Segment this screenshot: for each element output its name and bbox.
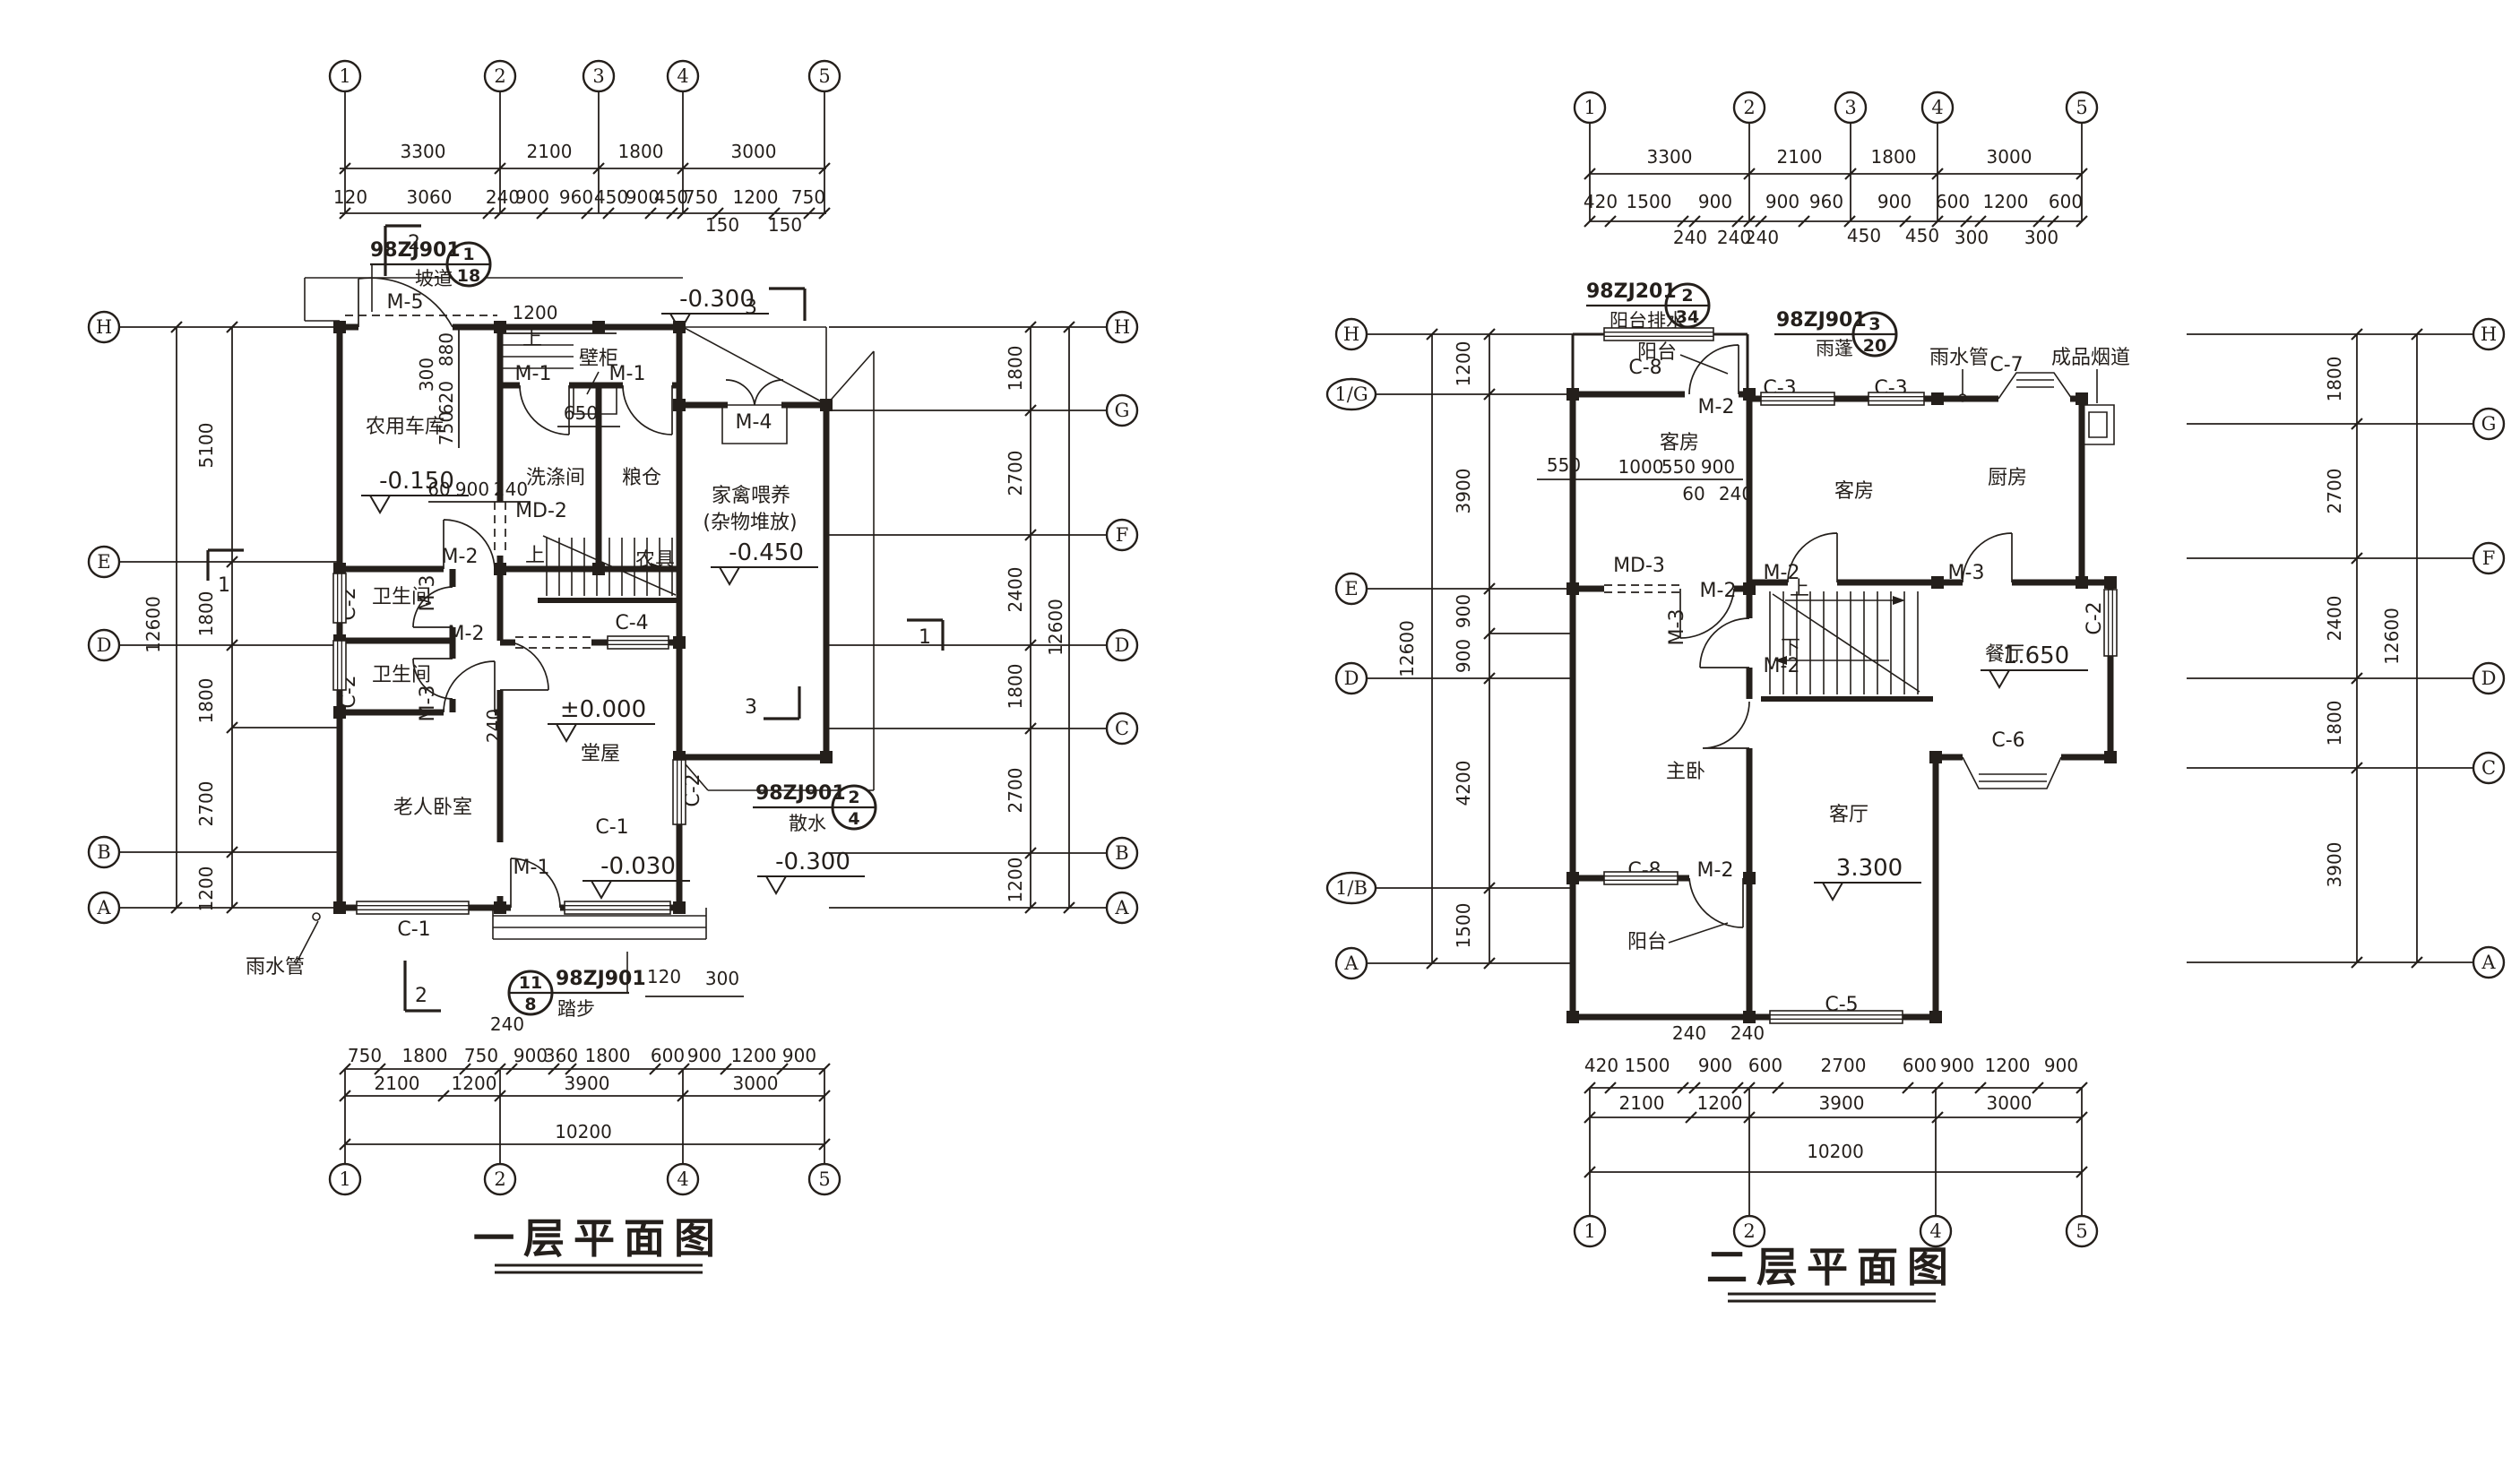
grid-bubble-label: 5 [818, 1168, 830, 1190]
label-text: M-2 [1700, 580, 1737, 602]
dimension-text: 1800 [2324, 701, 2345, 746]
callout-note: 踏步 [557, 998, 595, 1020]
column-block [1931, 576, 1944, 589]
dimension-text: 1800 [195, 678, 217, 724]
grid-bubble-label: 5 [818, 65, 830, 87]
dimension-text: 900 [1698, 191, 1732, 212]
dimension-text: 900 [455, 478, 489, 500]
label-text: M-3 [1666, 609, 1688, 646]
dimension-text: 1000 [1618, 456, 1664, 478]
label-text: 1 [919, 626, 931, 649]
grid-bubble-label: 1 [1584, 97, 1595, 118]
grid-bubble-label: E [1344, 578, 1358, 599]
column-block [1566, 582, 1579, 595]
dimension-text: 300 [416, 358, 437, 392]
dimension-text: 600 [2049, 191, 2083, 212]
callout-detail-number: 11 [519, 973, 542, 993]
label-text: 卫生间 [372, 664, 431, 686]
dimension-text: 1200 [1005, 858, 1026, 903]
column-block [1743, 1011, 1756, 1023]
grid-bubble-label: 1 [1584, 1220, 1595, 1242]
dimension-text: 900 [687, 1045, 721, 1066]
label-text: 农具 [635, 549, 675, 572]
label-text: 上 [1790, 578, 1809, 600]
dimension-text: 12600 [2381, 608, 2403, 665]
callout-sheet-number: 18 [457, 266, 480, 286]
window-symbol [1868, 392, 1924, 405]
dimension-text: 1800 [2324, 357, 2345, 402]
column-block [820, 399, 833, 411]
grid-bubble-label: F [2482, 547, 2496, 569]
dimension-text: 1200 [452, 1073, 497, 1094]
callout-code: 98ZJ901 [1776, 309, 1867, 332]
label-text: 3 [745, 696, 757, 719]
label-text: 2 [415, 985, 427, 1007]
column-block [592, 563, 605, 575]
dimension-text: 1800 [1871, 146, 1917, 168]
dimension-text: 450 [594, 186, 628, 208]
column-block [494, 563, 506, 575]
first-floor-eaves [296, 264, 874, 993]
dimension-text: 1800 [618, 141, 664, 162]
window-symbol [565, 901, 670, 914]
dimension-text: 900 [2044, 1055, 2078, 1076]
column-block [2104, 576, 2117, 589]
callout-sheet-number: 20 [1863, 336, 1886, 356]
column-block [2076, 392, 2088, 405]
dimension-text: 1200 [1697, 1092, 1743, 1114]
label-text: MD-2 [515, 500, 567, 522]
level-value: -0.450 [729, 539, 804, 566]
callout-code: 98ZJ201 [1586, 280, 1677, 303]
dimension-text: 420 [1584, 191, 1618, 212]
grid-bubble-label: 1/B [1335, 877, 1368, 899]
label-text: 阳台 [1627, 931, 1667, 953]
dimension-text: 3060 [407, 186, 453, 208]
dimension-text: 900 [782, 1045, 816, 1066]
window-symbol [2104, 590, 2117, 656]
level-triangle-icon [1981, 670, 2088, 687]
dimension-text: 1200 [513, 302, 558, 323]
level-triangle-icon [361, 496, 469, 513]
dimension-text: 240 [1673, 227, 1707, 248]
label-text: 雨水管 [1929, 347, 1989, 369]
grid-bubble-label: 5 [2076, 1220, 2087, 1242]
second-floor-title: 二层平面图 [1706, 1243, 1957, 1291]
column-block [1931, 392, 1944, 405]
dimension-text: 1800 [585, 1045, 631, 1066]
dimension-text: 120 [333, 186, 367, 208]
floor-plan-sheet: 一层平面图 二层平面图 123451245HEDBAHGFDCBA3300210… [0, 0, 2520, 1457]
label-text: 农用车库 [366, 416, 444, 438]
grid-bubble-label: 4 [1931, 97, 1943, 118]
grid-bubble-label: G [1115, 400, 1130, 421]
dimension-text: 2400 [2324, 596, 2345, 642]
dimension-text: 1800 [402, 1045, 448, 1066]
column-block [2104, 751, 2117, 763]
grid-bubble-label: H [2481, 323, 2497, 345]
column-block [673, 901, 686, 914]
column-block [1566, 388, 1579, 401]
dimension-text: 60 [1682, 483, 1704, 504]
dimension-text: 750 [684, 186, 718, 208]
dimension-text: 3000 [731, 141, 777, 162]
second-floor-thin [1573, 334, 2114, 943]
dimension-text: 1500 [1627, 191, 1672, 212]
label-text: 客厅 [1829, 804, 1868, 826]
label-text: C-6 [1991, 729, 2024, 752]
level-value: ±0.000 [560, 696, 646, 723]
window-symbol [608, 636, 669, 649]
column-block [1743, 388, 1756, 401]
grid-bubble-label: F [1116, 524, 1129, 546]
dimension-text: 10200 [555, 1121, 612, 1142]
label-text: 上 [525, 545, 545, 567]
dimension-text: 600 [1903, 1055, 1937, 1076]
dimension-text: 3900 [565, 1073, 610, 1094]
dimension-text: 300 [705, 968, 739, 989]
callout-detail-number: 2 [848, 788, 859, 807]
dimension-text: 550 [1661, 456, 1696, 478]
dimension-text: 900 [1940, 1055, 1974, 1076]
grid-bubble-label: D [1344, 668, 1359, 689]
callout-detail-number: 1 [462, 245, 474, 264]
label-text: M-5 [387, 291, 424, 314]
label-text: 洗涤间 [526, 467, 585, 489]
grid-bubble-label: 4 [677, 1168, 688, 1190]
grid-bubble-label: H [96, 316, 112, 338]
dimension-text: 3000 [1987, 146, 2032, 168]
column-block [673, 399, 686, 411]
dimension-text: 3300 [401, 141, 446, 162]
label-text: 客房 [1660, 432, 1699, 454]
label-text: MD-3 [1613, 555, 1665, 577]
column-block [1929, 1011, 1942, 1023]
label-text: 堂屋 [581, 743, 620, 765]
column-block [494, 901, 506, 914]
column-block [673, 636, 686, 649]
dimension-text: 620 [436, 381, 457, 415]
grid-bubble-label: 4 [1929, 1220, 1941, 1242]
column-block [2076, 576, 2088, 589]
dimension-text: 960 [1809, 191, 1843, 212]
grid-bubble-label: 1 [339, 65, 350, 87]
dimension-text: 360 [544, 1045, 578, 1066]
column-block [1929, 751, 1942, 763]
dimension-text: 240 [490, 1013, 524, 1035]
window-symbol [333, 573, 346, 623]
column-block [673, 321, 686, 333]
dimension-text: 3900 [2324, 842, 2345, 888]
grid-bubble-label: 5 [2076, 97, 2087, 118]
column-block [333, 706, 346, 719]
level-value: -0.150 [379, 468, 454, 495]
label-text: 主卧 [1666, 761, 1705, 783]
label-text: 粮仓 [622, 467, 661, 489]
dimension-text: 750 [464, 1045, 498, 1066]
second-floor-grid-lines [1367, 123, 2473, 1215]
dimension-text: 450 [1847, 225, 1881, 246]
grid-bubble-label: B [97, 841, 110, 863]
column-block [333, 901, 346, 914]
label-text: C-4 [615, 612, 648, 634]
label-text: 成品烟道 [2051, 347, 2130, 369]
dimension-text: 650 [564, 402, 598, 424]
dimension-text: 3900 [1453, 469, 1474, 514]
dimension-text: 1800 [195, 591, 217, 637]
level-triangle-icon [711, 567, 818, 584]
callout-sheet-number: 8 [524, 995, 536, 1014]
grid-bubble-label: C [2481, 757, 2496, 779]
dimension-text: 240 [1672, 1022, 1706, 1044]
dimension-text: 450 [1905, 225, 1939, 246]
dimension-text: 900 [1453, 594, 1474, 628]
label-text: C-1 [595, 816, 628, 839]
label-text: 1 [218, 574, 230, 597]
dimension-text: 2700 [2324, 469, 2345, 514]
label-text: C-1 [397, 918, 430, 941]
label-text: M-3 [417, 685, 439, 722]
label-text: M-3 [1948, 562, 1985, 584]
dimension-text: 1500 [1625, 1055, 1670, 1076]
window-symbol [1761, 392, 1834, 405]
dimension-text: 900 [1698, 1055, 1732, 1076]
dimension-text: 300 [2024, 227, 2058, 248]
dimension-text: 300 [1955, 227, 1989, 248]
callout-code: 98ZJ901 [556, 968, 646, 990]
grid-bubble-label: 2 [494, 1168, 505, 1190]
label-text: 雨水管 [246, 956, 305, 979]
dimension-text: 3300 [1647, 146, 1693, 168]
callout-detail-number: 3 [1868, 315, 1880, 334]
label-text: M-4 [736, 411, 772, 434]
window-symbol [1770, 1011, 1903, 1023]
dimension-text: 960 [559, 186, 593, 208]
dimension-text: 3000 [1987, 1092, 2032, 1114]
dimension-text: 2400 [1005, 567, 1026, 613]
first-floor-title: 一层平面图 [473, 1214, 724, 1263]
level-value: -0.030 [600, 853, 676, 880]
label-text: C-2 [2084, 601, 2106, 634]
dimension-text: 5100 [195, 423, 217, 469]
dimension-text: 240 [483, 709, 505, 743]
level-triangle-icon [548, 724, 655, 741]
label-text: 壁柜 [579, 348, 618, 370]
grid-bubble-label: 2 [494, 65, 505, 87]
level-value: -0.300 [679, 286, 755, 313]
dimension-text: 600 [1748, 1055, 1782, 1076]
grid-bubble-label: G [2481, 413, 2497, 435]
dimension-text: 2700 [1005, 451, 1026, 496]
grid-bubble-label: C [1115, 718, 1129, 739]
dimension-text: 1200 [1983, 191, 2029, 212]
column-block [820, 751, 833, 763]
grid-bubble-label: 2 [1743, 97, 1755, 118]
dimension-text: 600 [1936, 191, 1970, 212]
dimension-text: 150 [768, 214, 802, 236]
grid-bubble-label: 4 [677, 65, 688, 87]
dimension-text: 900 [515, 186, 549, 208]
dimension-text: 1500 [1453, 903, 1474, 949]
callout-detail-number: 2 [1681, 286, 1693, 306]
grid-bubble-label: 1 [339, 1168, 350, 1190]
label-text: C-7 [1989, 354, 2023, 376]
grid-bubble-label: 2 [1743, 1220, 1755, 1242]
level-value: 1.650 [2003, 642, 2069, 669]
column-block [592, 321, 605, 333]
grid-bubble-label: D [97, 634, 112, 656]
grid-bubble-label: B [1115, 842, 1128, 864]
dimension-text: 2700 [195, 781, 217, 827]
grid-bubble-label: D [2481, 668, 2497, 689]
dimension-text: 12600 [1396, 620, 1418, 677]
window-symbol [1604, 328, 1713, 341]
grid-bubble-label: D [1115, 634, 1130, 656]
dimension-text: 750 [791, 186, 825, 208]
label-text: 上 [522, 328, 542, 350]
dimension-text: 1200 [1453, 341, 1474, 387]
dimension-text: 240 [1719, 483, 1753, 504]
window-symbol [673, 760, 686, 824]
column-block [333, 321, 346, 333]
dimension-text: 2100 [375, 1073, 420, 1094]
callout-note: 坡道 [415, 268, 453, 289]
label-text: M-2 [1698, 396, 1735, 418]
grid-bubble-label: A [1114, 897, 1129, 918]
label-text: 卫生间 [372, 586, 431, 608]
dimension-text: 1200 [731, 1045, 777, 1066]
grid-bubble-label: A [96, 897, 111, 918]
level-value: -0.300 [775, 849, 850, 875]
label-text: 老人卧室 [393, 797, 472, 819]
first-floor-grid-lines [119, 91, 1107, 1163]
dimension-text: 1200 [1985, 1055, 2031, 1076]
callout-note: 散水 [789, 813, 826, 834]
dimension-text: 2100 [1619, 1092, 1665, 1114]
dimension-text: 750 [348, 1045, 382, 1066]
first-floor-section-marks [208, 226, 943, 1011]
level-triangle-icon [757, 876, 865, 893]
dimension-text: 240 [1730, 1022, 1765, 1044]
dimension-text: 880 [436, 332, 457, 366]
grid-bubble-label: 1/G [1334, 384, 1368, 405]
window-symbol [357, 901, 469, 914]
label-text: C-8 [1628, 357, 1661, 379]
label-text: M-2 [1697, 859, 1734, 882]
label-text: M-1 [515, 363, 552, 385]
dimension-text: 3000 [733, 1073, 779, 1094]
dimension-text: 1800 [1005, 664, 1026, 710]
grid-bubble-label: 3 [1844, 97, 1856, 118]
label-text: 家禽喂养 [712, 485, 790, 507]
dimension-text: 3900 [1819, 1092, 1865, 1114]
label-text: 厨房 [1988, 467, 2027, 489]
dimension-text: 1200 [733, 186, 779, 208]
dimension-text: 12600 [1045, 599, 1066, 656]
dimension-text: 240 [494, 478, 528, 500]
dimension-text: 120 [647, 966, 681, 987]
dimension-text: 900 [1877, 191, 1912, 212]
callout-code: 98ZJ901 [370, 239, 461, 262]
dimension-text: 4200 [1453, 761, 1474, 806]
column-block [494, 321, 506, 333]
window-symbol [1604, 872, 1678, 884]
column-block [1566, 1011, 1579, 1023]
dimension-text: 900 [1701, 456, 1735, 478]
label-text: 客房 [1834, 480, 1874, 503]
dimension-text: 12600 [142, 596, 164, 653]
dimension-text: 150 [705, 214, 739, 236]
dimension-text: 900 [1765, 191, 1799, 212]
dimension-text: 900 [1453, 639, 1474, 673]
dimension-text: 600 [651, 1045, 685, 1066]
grid-bubble-label: E [97, 551, 110, 573]
label-text: M-2 [448, 623, 485, 645]
dimension-text: 240 [1745, 227, 1779, 248]
grid-bubble-label: A [1343, 953, 1359, 974]
level-triangle-icon [583, 881, 690, 898]
grid-bubble-label: 3 [592, 65, 604, 87]
dimension-text: 10200 [1807, 1141, 1864, 1162]
grid-bubble-label: H [1114, 316, 1130, 338]
label-text: M-2 [442, 546, 479, 568]
label-text: (杂物堆放) [703, 512, 797, 534]
dimension-text: 550 [1547, 454, 1581, 476]
dimension-text: 2700 [1821, 1055, 1867, 1076]
dimension-text: 1200 [195, 866, 217, 912]
level-triangle-icon [1814, 883, 1921, 900]
level-value: 3.300 [1836, 855, 1903, 882]
column-block [1743, 582, 1756, 595]
dimension-text: 1800 [1005, 346, 1026, 392]
column-block [1566, 872, 1579, 884]
dimension-text: 420 [1584, 1055, 1618, 1076]
label-text: M-2 [1764, 655, 1800, 677]
drawing-svg: 一层平面图 二层平面图 123451245HEDBAHGFDCBA3300210… [0, 0, 2520, 1457]
dimension-text: 2700 [1005, 768, 1026, 814]
column-block [1743, 872, 1756, 884]
window-symbol [333, 641, 346, 690]
dimension-text: 900 [513, 1045, 548, 1066]
dimension-text: 2100 [527, 141, 573, 162]
callout-sheet-number: 4 [848, 809, 859, 829]
label-text: M-1 [513, 857, 550, 879]
callout-note: 雨蓬 [1816, 338, 1853, 359]
grid-bubble-label: A [2481, 952, 2496, 973]
dimension-text: 2100 [1777, 146, 1823, 168]
callout-code: 98ZJ901 [755, 782, 846, 805]
grid-bubble-label: H [1343, 323, 1359, 345]
